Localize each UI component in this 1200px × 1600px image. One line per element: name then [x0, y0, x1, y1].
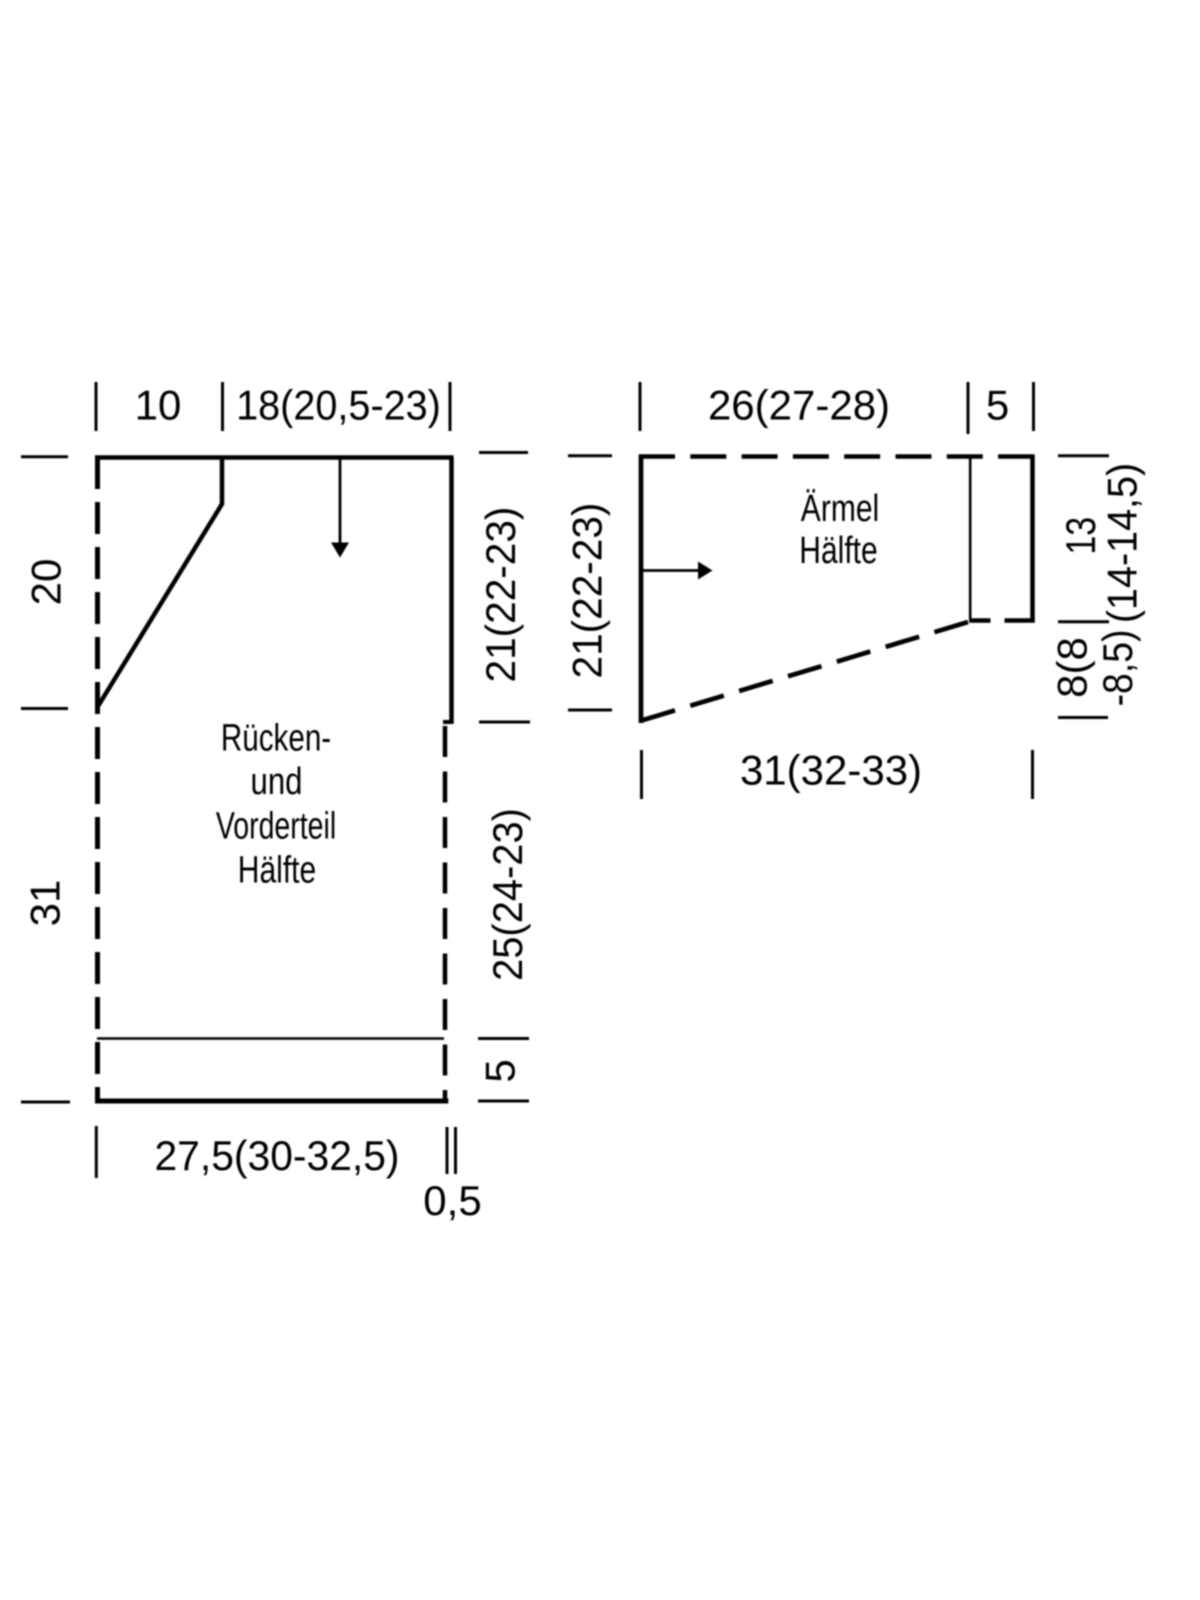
- svg-text:5: 5: [986, 382, 1009, 429]
- svg-text:20: 20: [23, 559, 70, 606]
- svg-text:10: 10: [135, 382, 182, 429]
- svg-text:-8,5): -8,5): [1095, 630, 1141, 707]
- svg-text:Rücken-: Rücken-: [221, 717, 331, 759]
- svg-text:18(20,5-23): 18(20,5-23): [236, 381, 441, 428]
- svg-text:und: und: [251, 761, 303, 803]
- svg-text:Ärmel: Ärmel: [801, 488, 879, 530]
- svg-text:31: 31: [22, 880, 69, 927]
- svg-text:8(8: 8(8: [1049, 637, 1096, 698]
- svg-text:Vorderteil: Vorderteil: [216, 806, 336, 848]
- svg-text:26(27-28): 26(27-28): [708, 382, 890, 429]
- svg-text:31(32-33): 31(32-33): [740, 747, 922, 794]
- svg-text:25(24-23): 25(24-23): [484, 808, 531, 981]
- svg-text:(14-14,5): (14-14,5): [1098, 463, 1145, 623]
- svg-text:Hälfte: Hälfte: [799, 530, 877, 572]
- svg-text:21(22-23): 21(22-23): [564, 503, 611, 679]
- svg-text:5: 5: [477, 1059, 524, 1082]
- svg-text:0,5: 0,5: [423, 1177, 481, 1224]
- svg-text:21(22-23): 21(22-23): [477, 507, 524, 683]
- svg-text:27,5(30-32,5): 27,5(30-32,5): [154, 1132, 399, 1179]
- svg-text:Hälfte: Hälfte: [238, 849, 316, 891]
